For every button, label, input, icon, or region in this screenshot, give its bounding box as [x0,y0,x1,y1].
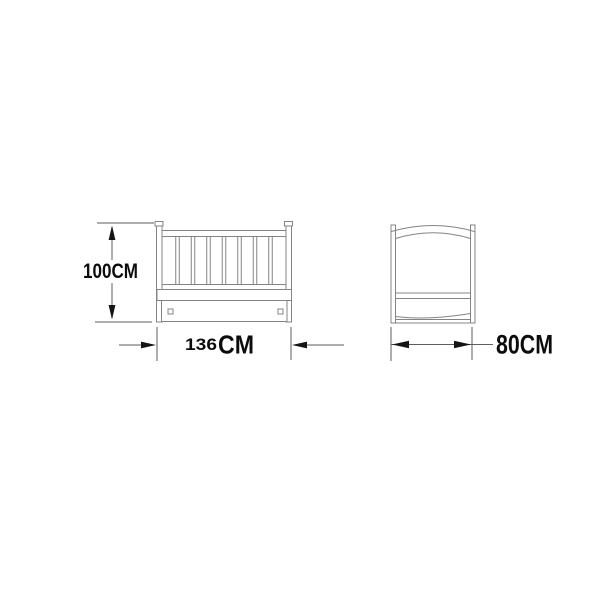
arrow-left-icon [392,341,409,348]
bar-3 [207,237,211,285]
bar-2 [191,237,195,285]
bar-5 [238,237,242,285]
front-width-value-label: 136 [185,335,217,354]
side-width-dimension: 80CM [391,327,553,361]
bar-1 [176,237,180,285]
side-arch-outer [392,226,475,232]
side-drawer-curve [396,314,471,318]
height-dimension: 100CM [83,223,154,322]
arrow-right-icon [454,341,471,348]
front-width-unit-label: CM [218,330,254,360]
side-view [391,225,475,323]
front-top-rail [162,231,286,237]
front-bars [176,237,273,285]
front-left-post-cap [155,222,163,227]
arrow-down-icon [109,305,116,320]
bar-4 [222,237,226,285]
bar-6 [253,237,257,285]
side-left-post [391,225,396,323]
front-drawer [162,301,288,322]
side-drawer [396,299,471,320]
side-arch-inner [396,233,471,239]
front-view [155,222,293,323]
front-width-dimension: 136 CM [119,327,344,361]
arrow-left-icon [292,342,307,349]
side-panel [396,239,471,293]
front-base-band [157,290,292,301]
crib-dimension-diagram: 100CM 136 CM 80CM [0,0,600,600]
side-right-post [471,225,476,323]
front-right-post-cap [285,222,293,227]
front-mid-rail [162,285,286,290]
arrow-right-icon [141,342,156,349]
bar-7 [269,237,273,285]
side-width-label: 80CM [496,330,553,360]
arrow-up-icon [109,226,116,241]
height-dimension-label: 100CM [83,260,138,283]
